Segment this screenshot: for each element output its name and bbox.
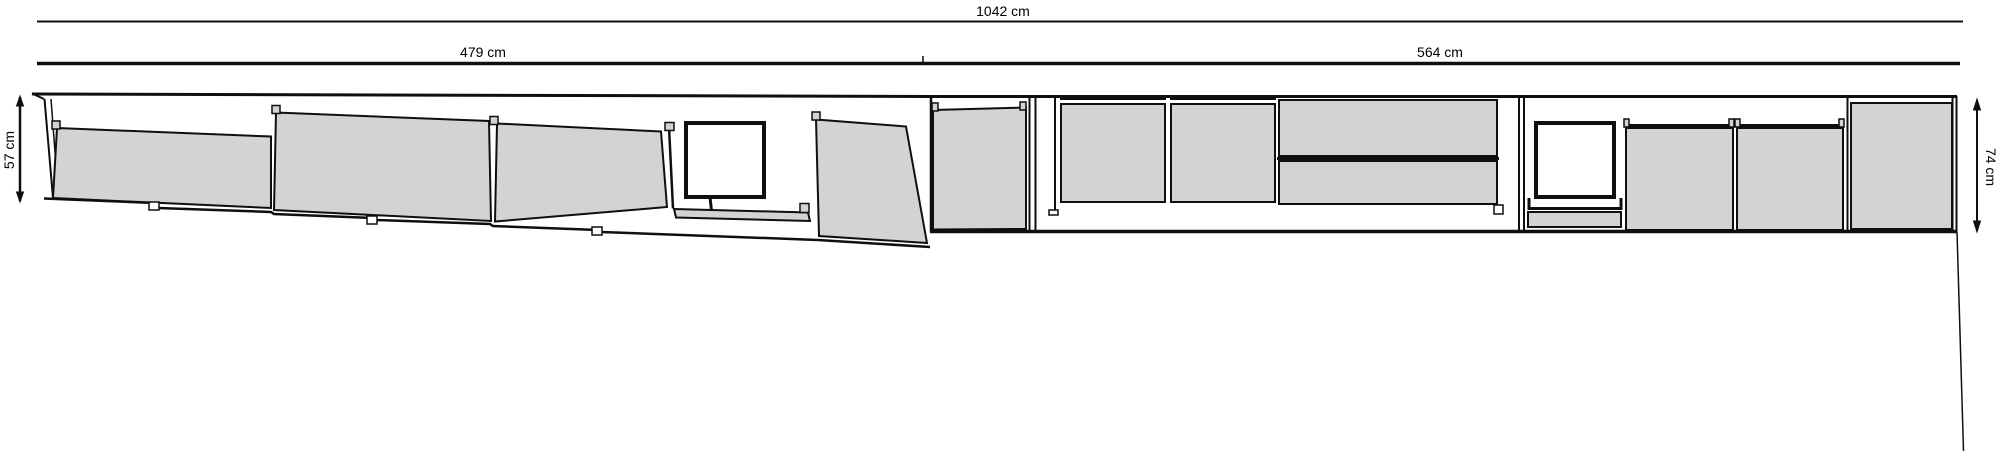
hinge-tab bbox=[800, 204, 809, 213]
foot bbox=[149, 202, 159, 210]
arrow-down-icon bbox=[17, 192, 24, 202]
drawer-front bbox=[1279, 100, 1497, 156]
blueprint-canvas: 1042 cm479 cm564 cm57 cm74 cm bbox=[0, 0, 2000, 452]
hinge-tab bbox=[272, 106, 280, 114]
hinge-tab bbox=[932, 103, 938, 111]
hinge-tab bbox=[812, 112, 820, 120]
hinge-tab bbox=[490, 117, 498, 125]
dim-right-height-label: 74 cm bbox=[1983, 148, 1999, 186]
wall-door bbox=[1171, 104, 1275, 202]
panel-front bbox=[274, 113, 491, 222]
foot bbox=[367, 216, 377, 224]
corner-drop-line bbox=[1957, 232, 1964, 451]
left-run-oblique bbox=[32, 94, 930, 248]
drawer-front bbox=[1279, 161, 1497, 204]
window-sill bbox=[1529, 198, 1621, 209]
dim-total-label: 1042 cm bbox=[976, 3, 1030, 19]
panel-front bbox=[495, 124, 667, 222]
panel-front bbox=[53, 128, 271, 208]
tall-end-door bbox=[1851, 103, 1952, 229]
base-door bbox=[933, 108, 1026, 230]
hinge-tab bbox=[665, 123, 674, 131]
dim-left-height-label: 57 cm bbox=[1, 131, 17, 169]
hinge-tab bbox=[52, 121, 60, 129]
base-door bbox=[1737, 128, 1843, 230]
elevation-drawing: 1042 cm479 cm564 cm57 cm74 cm bbox=[0, 0, 2000, 452]
arrow-up-icon bbox=[17, 96, 24, 106]
wall-door bbox=[1061, 104, 1165, 202]
dim-left-width-label: 479 cm bbox=[460, 44, 506, 60]
open-door-panel bbox=[816, 120, 927, 244]
window-opening bbox=[1536, 123, 1614, 197]
hinge-tab bbox=[1020, 102, 1026, 110]
foot bbox=[1049, 210, 1058, 215]
hinge-tab bbox=[1839, 119, 1844, 127]
hinge-tab bbox=[1729, 119, 1734, 127]
window-stem bbox=[710, 197, 712, 211]
divider bbox=[669, 127, 673, 209]
sill-strip bbox=[674, 209, 810, 221]
window-opening bbox=[686, 123, 764, 197]
right-run-elevation bbox=[930, 96, 1964, 451]
foot bbox=[592, 227, 602, 235]
hinge-tab bbox=[1735, 119, 1740, 127]
top-edge bbox=[32, 94, 930, 97]
arrow-up-icon bbox=[1974, 99, 1981, 110]
arrow-down-icon bbox=[1974, 221, 1981, 232]
sill-strip bbox=[1528, 212, 1621, 227]
hinge-tab bbox=[1624, 119, 1629, 127]
base-door bbox=[1626, 128, 1733, 230]
foot bbox=[1494, 205, 1503, 214]
dim-right-width-label: 564 cm bbox=[1417, 44, 1463, 60]
